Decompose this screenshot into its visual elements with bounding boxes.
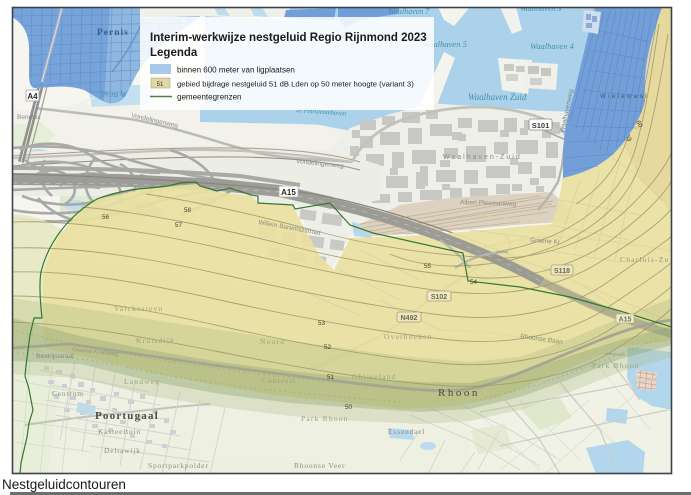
- svg-text:Park Rhoon: Park Rhoon: [301, 414, 349, 423]
- svg-text:gebied bijdrage nestgeluid 51: gebied bijdrage nestgeluid 51 dB Lden op…: [177, 80, 414, 89]
- svg-text:Beatrijsstraat: Beatrijsstraat: [36, 353, 74, 360]
- svg-text:51: 51: [157, 82, 164, 88]
- svg-text:Rhoon: Rhoon: [438, 387, 480, 399]
- svg-text:Charlois-Zu: Charlois-Zu: [620, 255, 669, 264]
- svg-text:Rhoonse Veer: Rhoonse Veer: [294, 461, 345, 470]
- svg-text:Landweg: Landweg: [124, 377, 160, 386]
- svg-text:50: 50: [345, 404, 353, 411]
- svg-text:58: 58: [184, 207, 192, 214]
- svg-text:Wielewaal: Wielewaal: [600, 94, 649, 100]
- svg-text:Centrum: Centrum: [262, 376, 297, 385]
- svg-text:Poortugaal: Poortugaal: [95, 410, 159, 422]
- svg-text:S101: S101: [532, 121, 550, 130]
- svg-text:55: 55: [424, 263, 432, 270]
- svg-text:Noord: Noord: [260, 337, 285, 346]
- svg-text:N492: N492: [401, 315, 418, 322]
- svg-text:Nestgeluidcontouren: Nestgeluidcontouren: [2, 477, 126, 492]
- svg-text:Interim-werkwijze nestgeluid R: Interim-werkwijze nestgeluid Regio Rijnm…: [150, 32, 427, 44]
- svg-text:Kasteeltuin: Kasteeltuin: [98, 427, 141, 436]
- svg-text:51: 51: [327, 374, 335, 381]
- svg-text:Kruisdijk: Kruisdijk: [136, 336, 175, 345]
- svg-text:A15: A15: [281, 188, 296, 197]
- svg-text:Park Rhoon: Park Rhoon: [592, 361, 640, 370]
- svg-text:Benelux: Benelux: [17, 114, 41, 121]
- svg-text:Centrum: Centrum: [52, 389, 84, 398]
- svg-text:Waalhaven 7: Waalhaven 7: [388, 7, 430, 16]
- svg-text:56: 56: [102, 214, 110, 221]
- svg-text:Waalhaven-Zuid: Waalhaven-Zuid: [443, 154, 522, 161]
- svg-text:Waalhaven 3: Waalhaven 3: [520, 4, 561, 13]
- svg-text:binnen 600 meter van ligplaats: binnen 600 meter van ligplaatsen: [177, 66, 295, 75]
- svg-text:Waalhaven 4: Waalhaven 4: [530, 41, 575, 51]
- svg-text:gemeentegrenzen: gemeentegrenzen: [177, 93, 242, 102]
- svg-text:Ghijseland: Ghijseland: [352, 372, 397, 381]
- svg-text:S102: S102: [431, 294, 447, 301]
- svg-text:S118: S118: [554, 268, 570, 275]
- svg-text:Valckesteyn: Valckesteyn: [114, 304, 163, 313]
- svg-text:Deltawijk: Deltawijk: [104, 446, 141, 455]
- svg-text:A15: A15: [619, 317, 632, 324]
- svg-text:A4: A4: [27, 92, 38, 101]
- svg-text:52: 52: [324, 344, 332, 351]
- svg-text:Overhoeken: Overhoeken: [384, 332, 433, 341]
- svg-text:Sportparkpolder: Sportparkpolder: [148, 461, 209, 470]
- svg-text:Waalhaven Zuid: Waalhaven Zuid: [468, 92, 527, 102]
- svg-text:Pernis: Pernis: [97, 28, 129, 38]
- svg-text:53: 53: [318, 320, 326, 327]
- svg-text:57: 57: [175, 222, 183, 229]
- svg-text:Essendael: Essendael: [388, 427, 425, 436]
- svg-text:Legenda: Legenda: [150, 47, 198, 59]
- svg-text:Prins W: Prins W: [100, 90, 128, 99]
